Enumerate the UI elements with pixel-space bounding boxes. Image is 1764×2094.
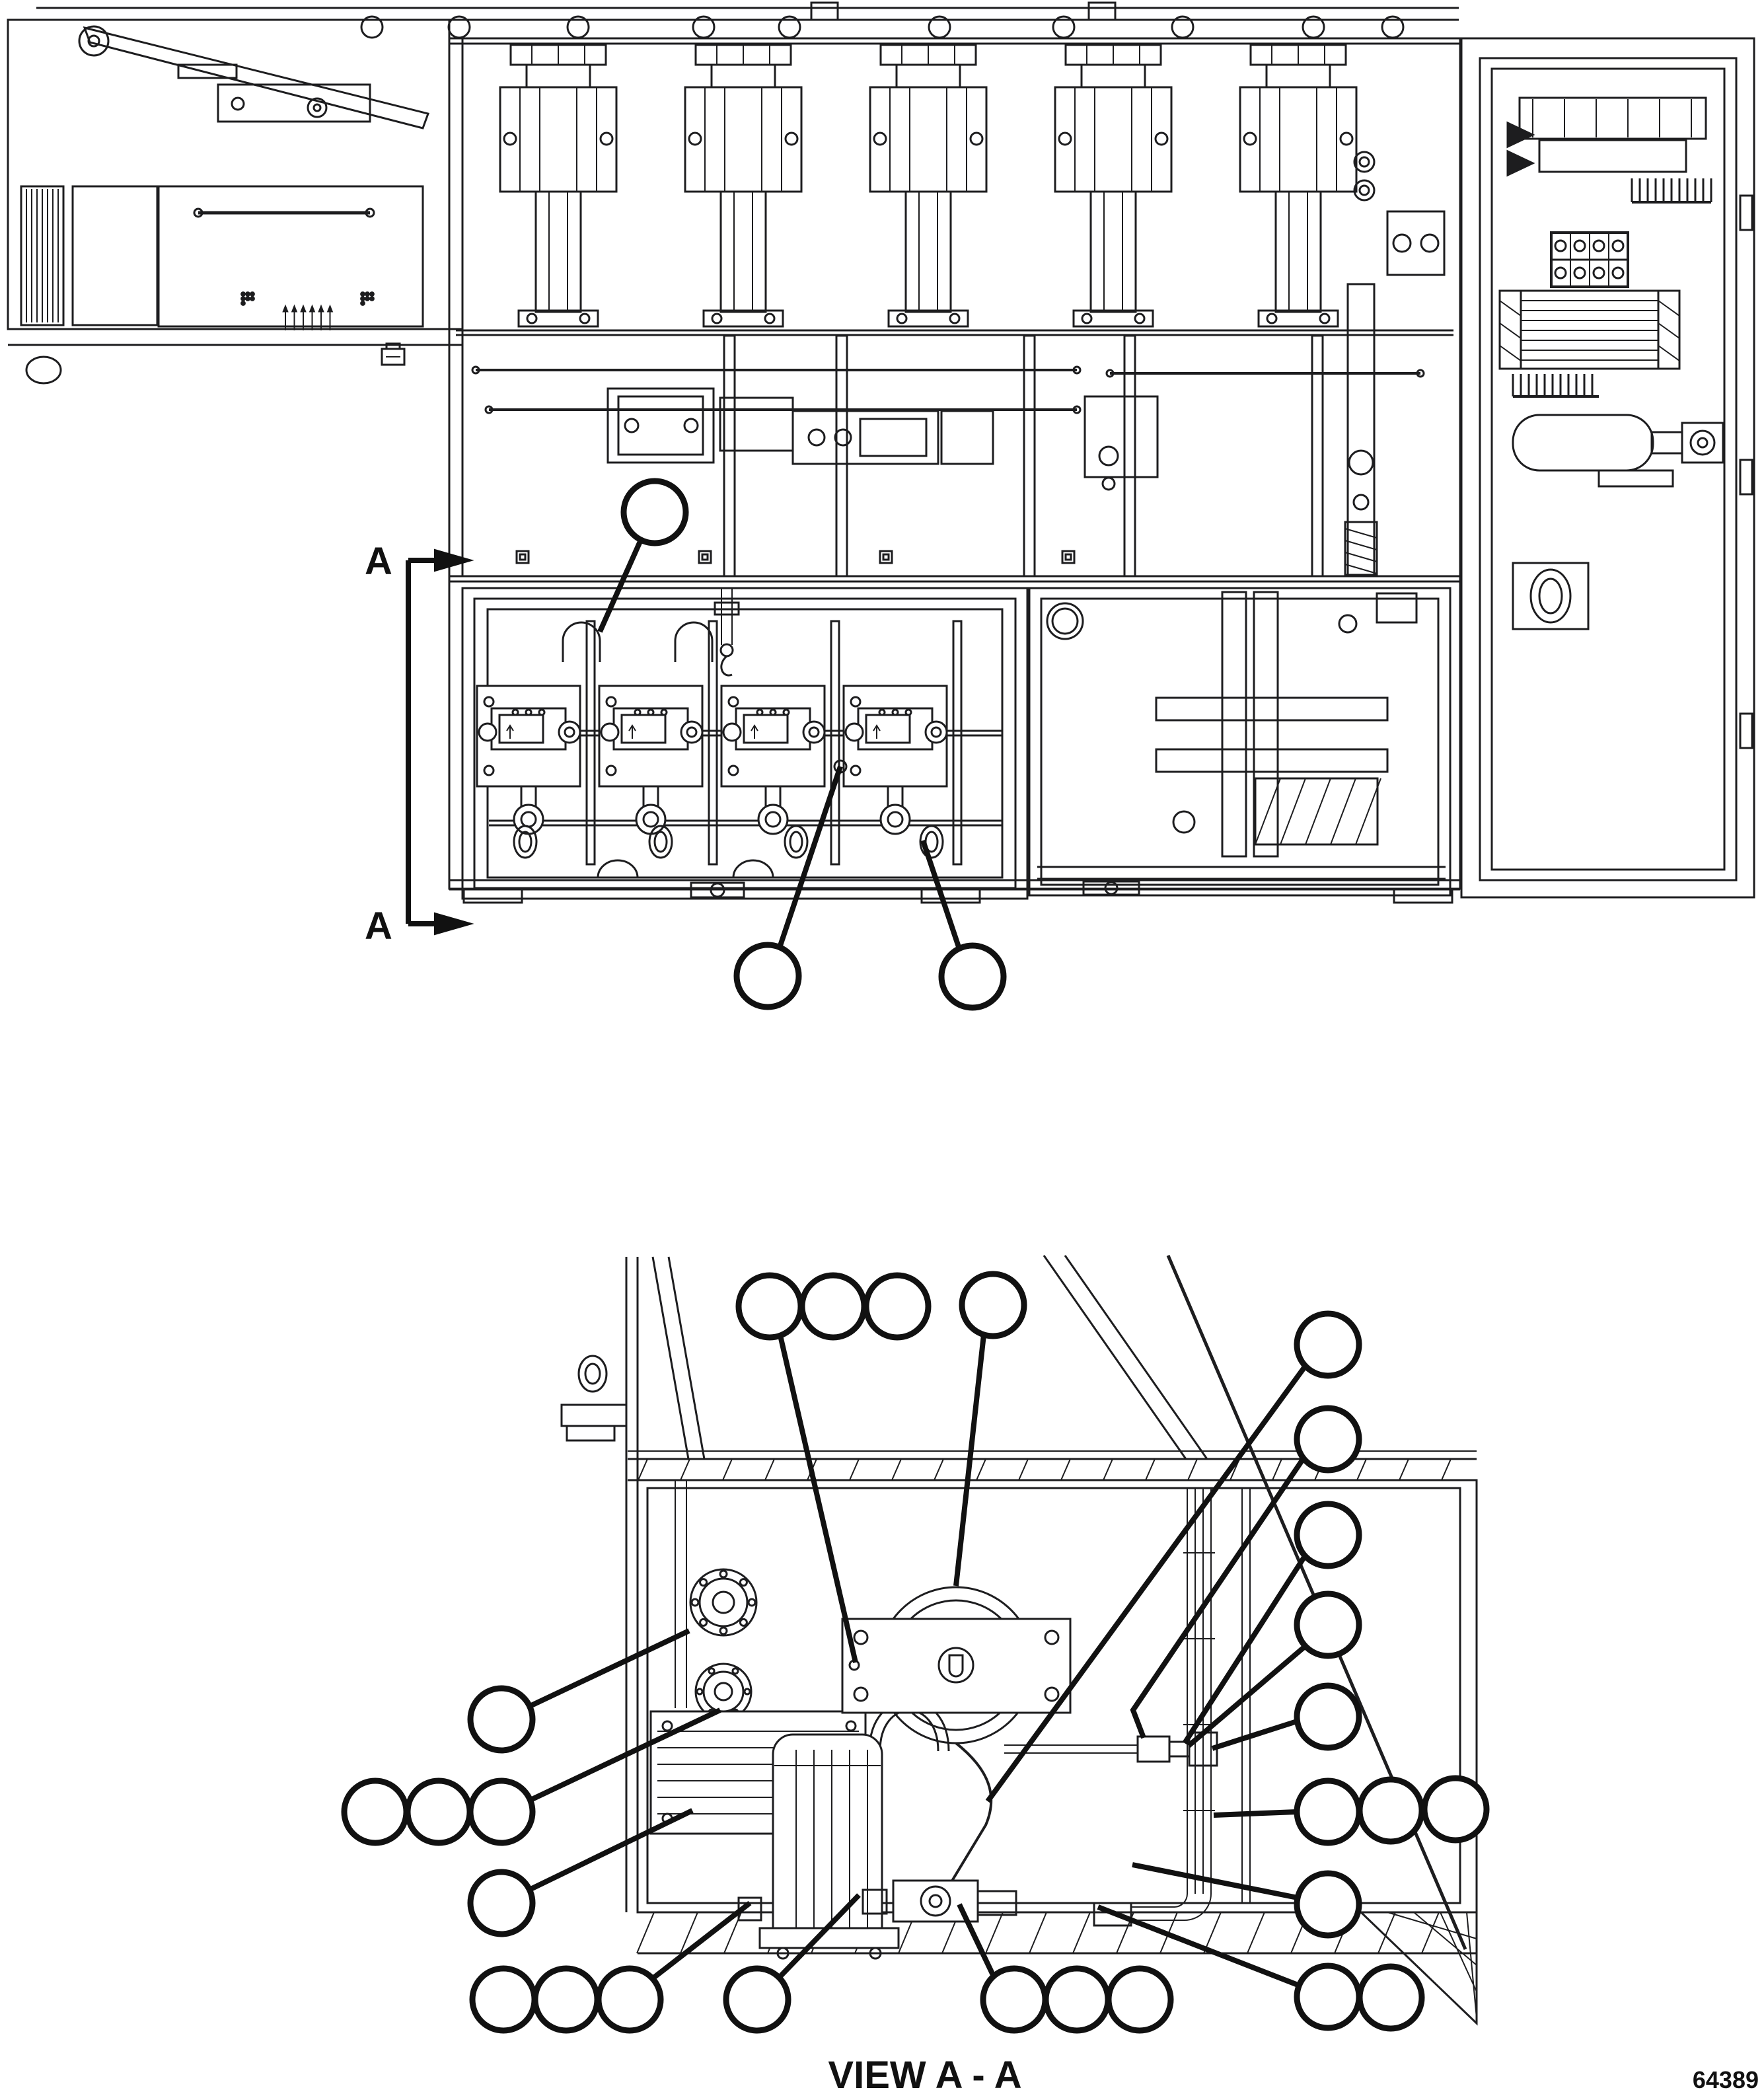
callout-balloon[interactable] <box>408 1781 470 1843</box>
callout-balloon[interactable] <box>1297 1408 1359 1470</box>
callout-balloon[interactable] <box>599 1968 661 2031</box>
view-aa-title: VIEW A - A <box>828 2054 1021 2094</box>
callout-balloon[interactable] <box>472 1968 534 2031</box>
callout-leader-line <box>653 1903 750 1978</box>
section-label-top: A <box>365 540 392 583</box>
callout-leader-line <box>530 1631 689 1706</box>
callout-balloon[interactable] <box>737 945 799 1007</box>
callout-balloon[interactable] <box>1297 1966 1359 2028</box>
drawing-number: 64389 <box>1693 2066 1759 2093</box>
callout-balloon[interactable] <box>962 1274 1024 1336</box>
callout-balloon[interactable] <box>983 1968 1045 2031</box>
callout-leader-line <box>529 1811 692 1890</box>
callout-leader-line <box>1212 1721 1297 1748</box>
callout-balloon[interactable] <box>624 481 686 543</box>
engineering-drawing-canvas: A A VIEW A - A 64389 <box>0 0 1764 2094</box>
callout-balloon[interactable] <box>1360 1966 1422 2029</box>
callout-balloon[interactable] <box>1424 1778 1487 1840</box>
callout-leader-line <box>780 1335 856 1663</box>
callout-leader-line <box>1214 1812 1297 1815</box>
callout-leader-line <box>1189 1646 1305 1746</box>
callout-balloon[interactable] <box>344 1781 406 1843</box>
callout-balloon[interactable] <box>802 1275 864 1337</box>
callout-balloon[interactable] <box>1297 1781 1359 1843</box>
callout-balloon[interactable] <box>1297 1873 1359 1935</box>
front-elevation-drawing <box>8 3 1754 903</box>
section-label-bottom: A <box>365 905 392 948</box>
callout-leader-line <box>1132 1865 1298 1898</box>
callout-balloon[interactable] <box>739 1275 801 1337</box>
callout-balloon[interactable] <box>941 946 1004 1008</box>
callout-balloon[interactable] <box>1297 1594 1359 1656</box>
callout-balloon[interactable] <box>1297 1504 1359 1566</box>
callout-balloon[interactable] <box>470 1872 533 1934</box>
callout-balloon[interactable] <box>470 1688 533 1750</box>
callout-balloon[interactable] <box>535 1968 597 2031</box>
callout-balloon[interactable] <box>1297 1686 1359 1748</box>
callout-leader-line <box>956 1335 984 1586</box>
callout-balloon[interactable] <box>1360 1779 1422 1842</box>
callout-balloon[interactable] <box>1046 1968 1108 2031</box>
callout-leader-line <box>600 540 641 632</box>
callout-balloon[interactable] <box>470 1781 533 1843</box>
callout-balloon[interactable] <box>1109 1968 1171 2031</box>
callout-balloon[interactable] <box>866 1275 928 1337</box>
callout-balloon[interactable] <box>726 1968 788 2031</box>
callout-balloon[interactable] <box>1297 1314 1359 1376</box>
